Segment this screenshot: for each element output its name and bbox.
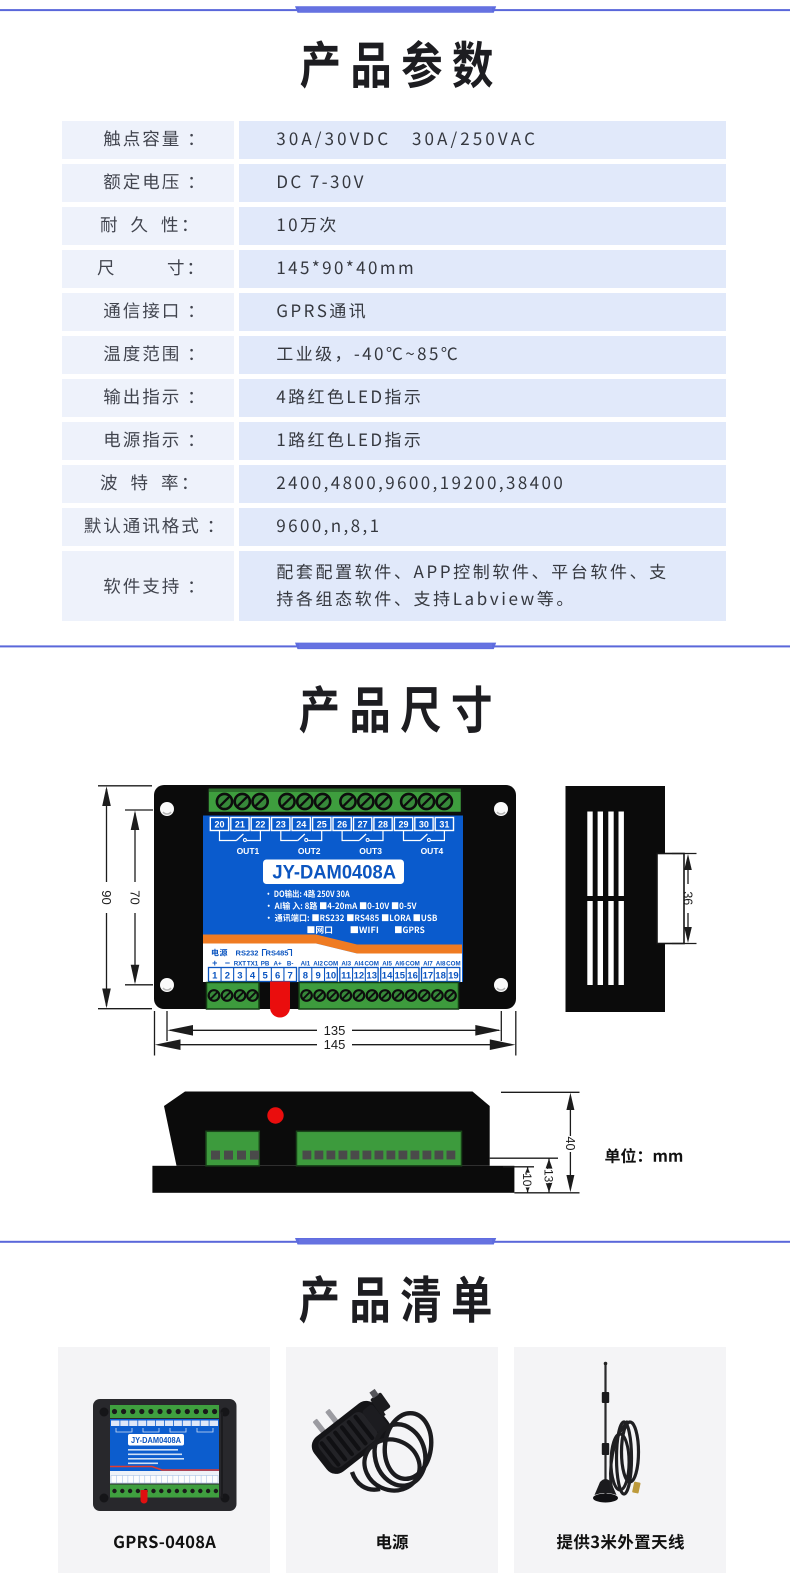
svg-text:AI1: AI1 [301, 961, 311, 968]
svg-text:40: 40 [563, 1137, 577, 1151]
svg-text:28: 28 [378, 820, 388, 830]
svg-text:8: 8 [303, 971, 308, 982]
svg-text:RS485: RS485 [266, 949, 289, 958]
svg-text:20: 20 [214, 820, 224, 830]
svg-text:29: 29 [398, 820, 408, 830]
svg-text:COM: COM [446, 961, 460, 968]
svg-text:3: 3 [237, 971, 242, 982]
svg-text:18: 18 [435, 971, 446, 982]
svg-text:17: 17 [423, 971, 434, 982]
svg-text:A+: A+ [274, 961, 282, 968]
svg-text:11: 11 [341, 971, 352, 982]
svg-text:OUT3: OUT3 [359, 846, 382, 856]
svg-text:19: 19 [448, 971, 459, 982]
svg-text:B-: B- [287, 961, 294, 968]
svg-text:2: 2 [225, 971, 230, 982]
svg-text:AI4: AI4 [354, 961, 364, 968]
svg-text:24: 24 [296, 820, 306, 830]
svg-text:27: 27 [358, 820, 368, 830]
svg-text:JY-DAM0408A: JY-DAM0408A [272, 862, 396, 884]
svg-text:OUT4: OUT4 [421, 846, 444, 856]
svg-text:OUT2: OUT2 [298, 846, 321, 856]
svg-text:COM: COM [405, 961, 419, 968]
svg-text:AI3: AI3 [341, 961, 351, 968]
svg-text:21: 21 [235, 820, 245, 830]
svg-text:7: 7 [288, 971, 293, 982]
svg-text:23: 23 [276, 820, 286, 830]
svg-text:AI7: AI7 [423, 961, 433, 968]
svg-text:AI8: AI8 [436, 961, 446, 968]
svg-text:6: 6 [275, 971, 280, 982]
svg-text:1: 1 [212, 971, 218, 982]
svg-text:5: 5 [262, 971, 268, 982]
svg-text:16: 16 [407, 971, 418, 982]
svg-text:9: 9 [315, 971, 320, 982]
svg-text:RXT: RXT [234, 961, 247, 968]
svg-text:TX1: TX1 [247, 961, 259, 968]
svg-text:10: 10 [520, 1173, 534, 1187]
svg-text:OUT1: OUT1 [237, 846, 260, 856]
svg-text:13: 13 [542, 1169, 556, 1183]
svg-text:22: 22 [255, 820, 265, 830]
svg-text:AI6: AI6 [395, 961, 405, 968]
svg-text:36: 36 [681, 891, 695, 905]
svg-text:26: 26 [337, 820, 347, 830]
svg-text:12: 12 [354, 971, 365, 982]
svg-text:13: 13 [366, 971, 377, 982]
svg-text:−: − [225, 958, 230, 968]
svg-text:15: 15 [395, 971, 406, 982]
svg-text:14: 14 [382, 971, 393, 982]
svg-text:RS232: RS232 [236, 949, 259, 958]
svg-text:135: 135 [324, 1023, 346, 1038]
svg-text:PB: PB [261, 961, 270, 968]
svg-text:145: 145 [324, 1037, 346, 1052]
svg-text:+: + [212, 958, 217, 968]
svg-text:4: 4 [250, 971, 256, 982]
svg-text:AI2: AI2 [313, 961, 323, 968]
svg-text:AI5: AI5 [382, 961, 392, 968]
svg-text:COM: COM [364, 961, 378, 968]
svg-text:30: 30 [419, 820, 429, 830]
svg-text:25: 25 [317, 820, 327, 830]
svg-text:COM: COM [324, 961, 338, 968]
svg-text:31: 31 [439, 820, 449, 830]
svg-text:90: 90 [99, 890, 114, 904]
svg-text:70: 70 [128, 890, 143, 904]
svg-text:JY-DAM0408A: JY-DAM0408A [131, 1435, 181, 1445]
svg-text:10: 10 [326, 971, 337, 982]
